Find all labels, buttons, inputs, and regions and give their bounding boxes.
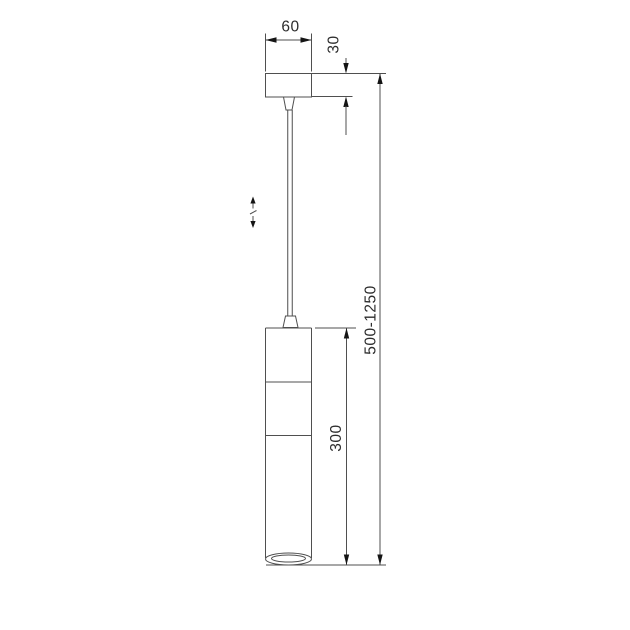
adjust-up-arrow-icon (250, 197, 255, 204)
canopy-stem (284, 97, 295, 110)
adjust-down-arrow-icon (250, 221, 255, 228)
arrowhead-up-icon (344, 328, 349, 339)
arrowhead-down-icon (343, 63, 348, 74)
fixture (266, 74, 312, 566)
arrowhead-right-icon (301, 37, 312, 42)
pendant-lamp-dimension-drawing: 60 30 300 500-1250 (0, 0, 630, 630)
lamp-body (266, 328, 312, 565)
arrowhead-up-icon (377, 74, 382, 85)
suspension-cable (288, 110, 293, 316)
ceiling-canopy (266, 74, 312, 98)
cable-gland (283, 316, 298, 328)
adjust-break-mark (250, 211, 257, 215)
dim-body-height: 300 (315, 328, 356, 565)
dim-canopy-height-label: 30 (326, 35, 343, 53)
arrowhead-up-icon (343, 97, 348, 108)
arrowhead-down-icon (344, 555, 349, 566)
arrowhead-down-icon (377, 555, 382, 566)
arrowhead-left-icon (266, 37, 277, 42)
dim-body-height-label: 300 (328, 424, 345, 451)
dim-overall-height-label: 500-1250 (363, 285, 380, 355)
dim-canopy-height: 30 (312, 35, 353, 135)
dim-canopy-width: 60 (266, 19, 312, 72)
dim-overall-height: 500-1250 (266, 74, 386, 566)
dim-canopy-width-label: 60 (281, 19, 299, 36)
opening-inner-rim (272, 555, 306, 562)
drawing-canvas: 60 30 300 500-1250 (0, 0, 630, 630)
height-adjust-symbol (250, 197, 257, 229)
